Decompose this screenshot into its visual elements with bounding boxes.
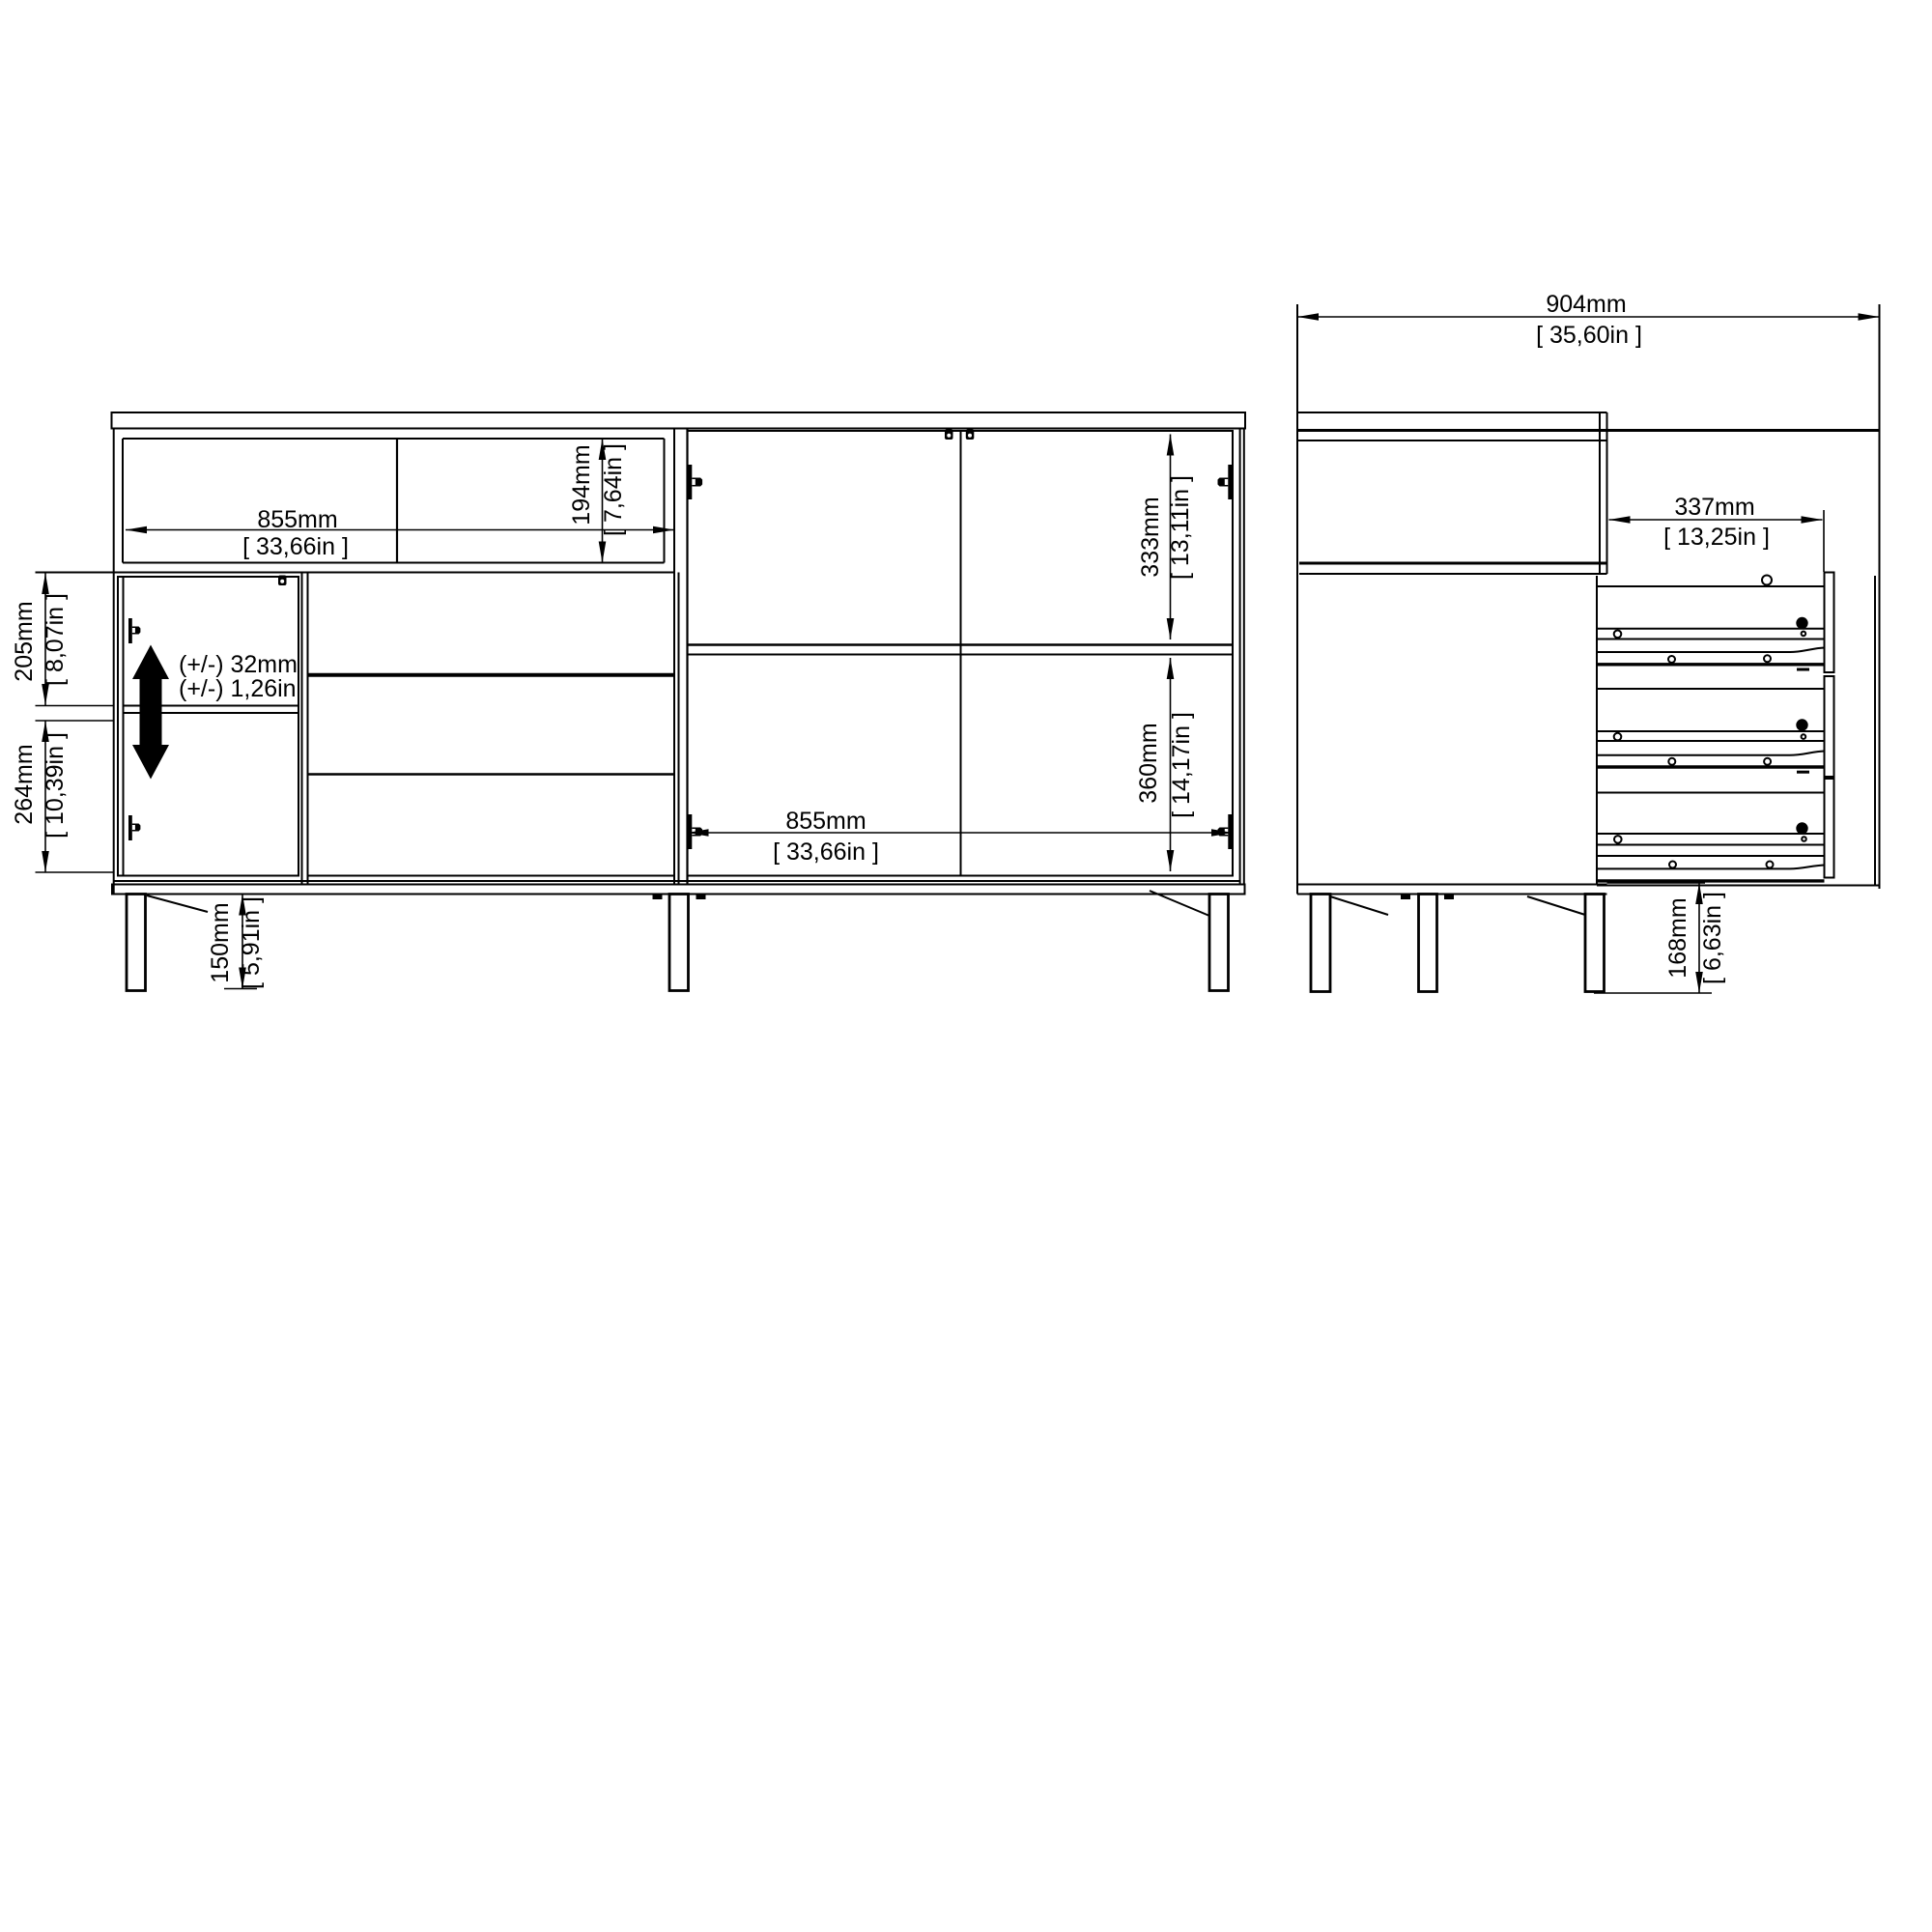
svg-text:[ 13,11in ]: [ 13,11in ]: [1167, 475, 1194, 580]
svg-text:[ 35,60in ]: [ 35,60in ]: [1536, 322, 1642, 349]
svg-text:360mm: 360mm: [1135, 723, 1162, 803]
svg-text:[ 5,91in ]: [ 5,91in ]: [238, 896, 265, 989]
svg-text:337mm: 337mm: [1674, 494, 1754, 521]
svg-text:150mm: 150mm: [207, 902, 234, 982]
svg-text:333mm: 333mm: [1137, 497, 1164, 577]
svg-text:194mm: 194mm: [568, 444, 595, 525]
svg-text:[ 14,17in ]: [ 14,17in ]: [1168, 712, 1195, 818]
svg-text:205mm: 205mm: [11, 601, 38, 681]
svg-text:(+/-) 1,26in: (+/-) 1,26in: [179, 675, 297, 702]
svg-text:[ 7,64in ]: [ 7,64in ]: [600, 443, 627, 536]
svg-text:855mm: 855mm: [257, 506, 337, 533]
svg-text:(+/-) 32mm: (+/-) 32mm: [179, 651, 298, 678]
svg-text:168mm: 168mm: [1664, 897, 1691, 978]
svg-text:264mm: 264mm: [11, 744, 38, 824]
svg-text:[ 33,66in ]: [ 33,66in ]: [242, 533, 349, 560]
svg-text:855mm: 855mm: [785, 808, 866, 835]
svg-text:[ 13,25in ]: [ 13,25in ]: [1663, 524, 1770, 551]
svg-text:904mm: 904mm: [1546, 291, 1626, 318]
svg-text:[ 33,66in ]: [ 33,66in ]: [773, 838, 879, 866]
svg-text:[ 8,07in ]: [ 8,07in ]: [42, 593, 69, 686]
svg-text:[ 6,63in ]: [ 6,63in ]: [1699, 892, 1726, 984]
svg-text:[ 10,39in ]: [ 10,39in ]: [42, 732, 69, 838]
